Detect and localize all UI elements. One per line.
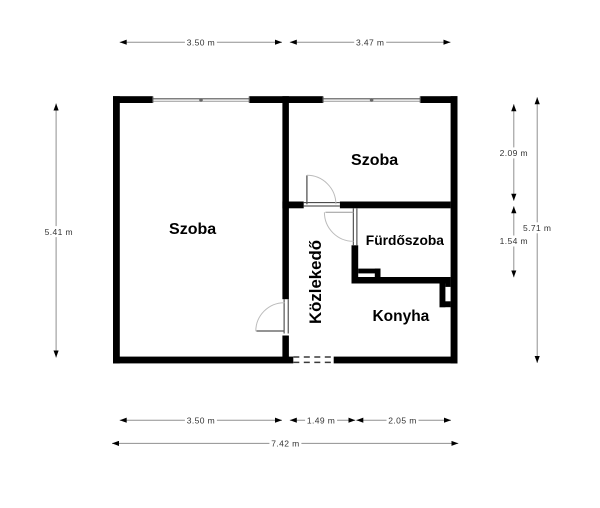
- svg-text:Konyha: Konyha: [372, 308, 429, 325]
- svg-text:7.42 m: 7.42 m: [271, 439, 299, 449]
- svg-text:2.05 m: 2.05 m: [388, 415, 416, 425]
- svg-text:5.41 m: 5.41 m: [45, 227, 73, 237]
- svg-text:Szoba: Szoba: [169, 221, 216, 238]
- svg-text:3.50 m: 3.50 m: [187, 415, 215, 425]
- svg-text:1.49 m: 1.49 m: [307, 415, 335, 425]
- svg-text:Közlekedő: Közlekedő: [306, 240, 325, 324]
- svg-text:Szoba: Szoba: [351, 152, 398, 169]
- svg-text:2.09 m: 2.09 m: [500, 148, 528, 158]
- svg-text:3.47 m: 3.47 m: [356, 37, 384, 47]
- svg-text:3.50 m: 3.50 m: [187, 37, 215, 47]
- svg-text:5.71 m: 5.71 m: [523, 223, 551, 233]
- svg-text:1.54 m: 1.54 m: [500, 236, 528, 246]
- svg-text:Fürdőszoba: Fürdőszoba: [366, 233, 445, 248]
